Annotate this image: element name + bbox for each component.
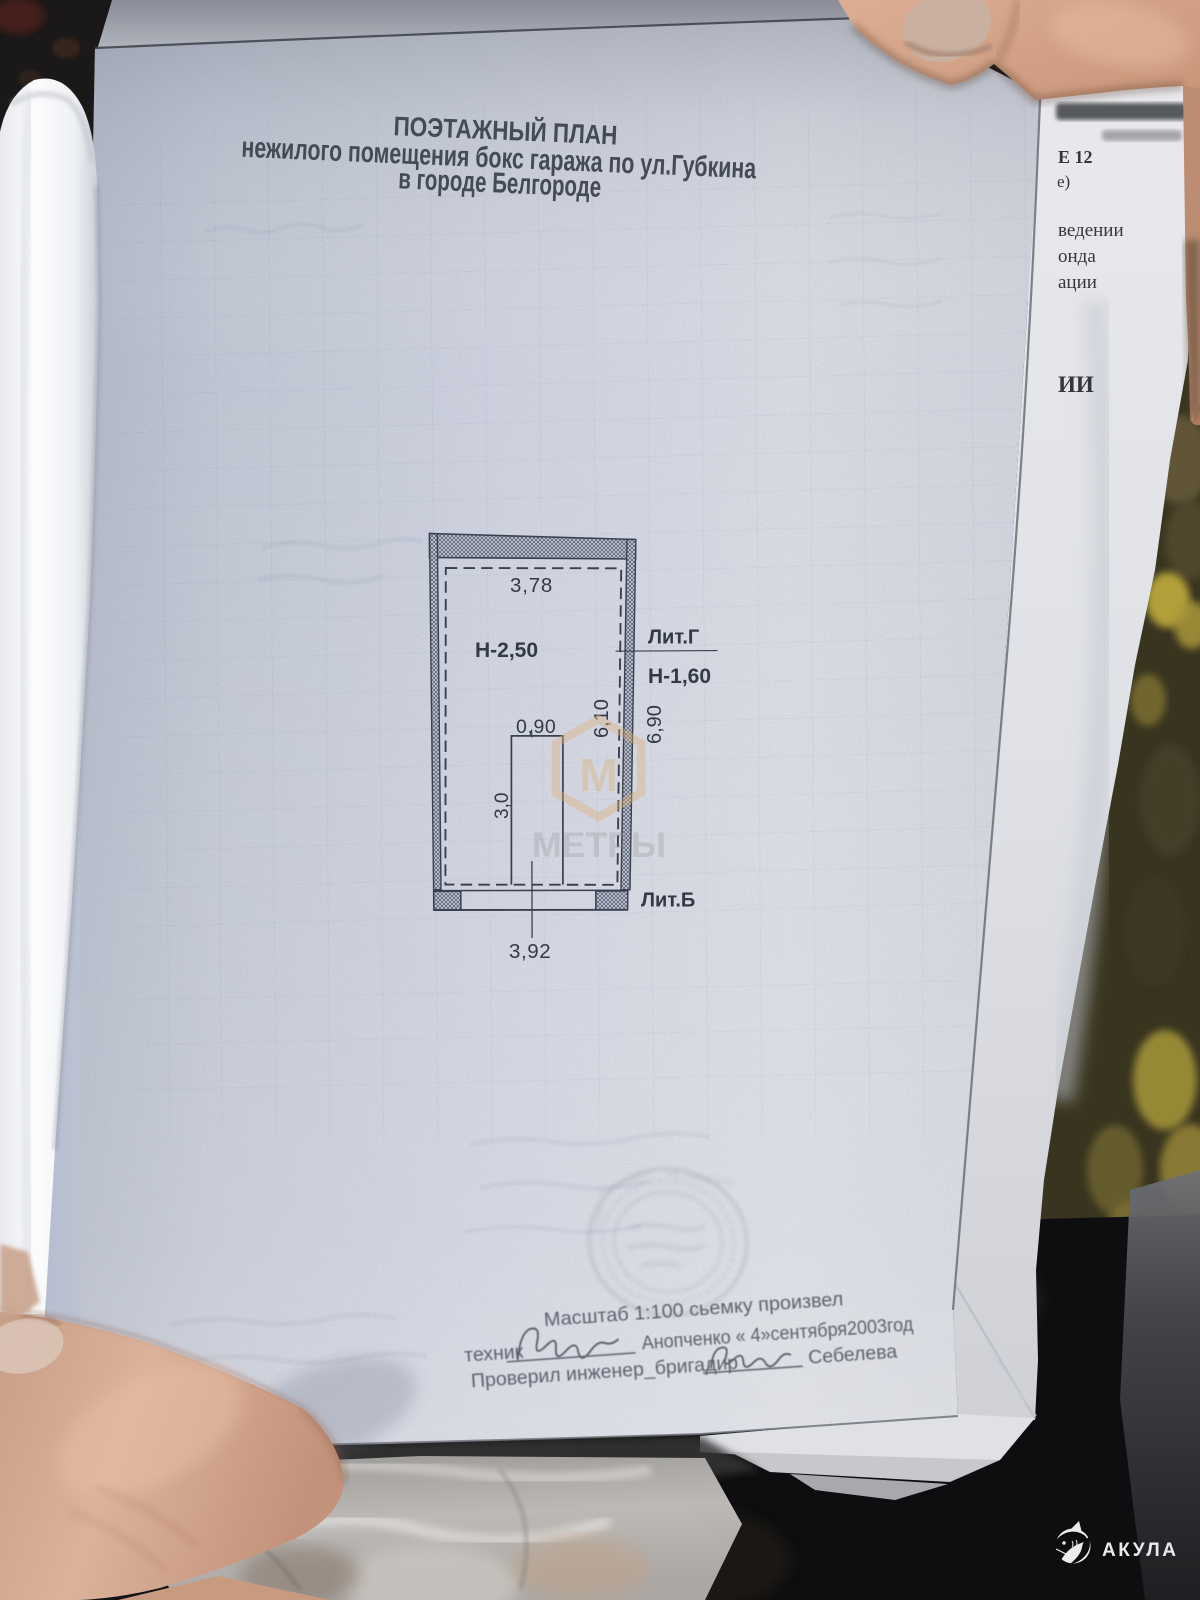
- svg-text:ации: ации: [1058, 272, 1097, 293]
- svg-text:е): е): [1057, 172, 1070, 191]
- svg-text:Лит.Б: Лит.Б: [641, 890, 695, 912]
- svg-text:3,92: 3,92: [509, 940, 551, 963]
- svg-text:АКУЛА: АКУЛА: [1102, 1540, 1178, 1561]
- svg-text:Лит.Г: Лит.Г: [648, 627, 699, 649]
- svg-text:0,90: 0,90: [516, 716, 556, 738]
- svg-text:техник: техник: [463, 1341, 524, 1367]
- svg-text:онда: онда: [1058, 246, 1096, 267]
- svg-text:Е 12: Е 12: [1058, 147, 1093, 167]
- svg-text:М: М: [579, 749, 617, 801]
- svg-text:ИИ: ИИ: [1058, 372, 1094, 397]
- svg-text:3,0: 3,0: [492, 793, 513, 819]
- svg-text:3,78: 3,78: [510, 574, 553, 597]
- svg-text:Н-1,60: Н-1,60: [648, 665, 711, 688]
- svg-text:6,90: 6,90: [644, 705, 666, 744]
- svg-text:ведении: ведении: [1058, 220, 1124, 241]
- svg-text:МЕТРЫ: МЕТРЫ: [532, 826, 666, 865]
- svg-text:Н-2,50: Н-2,50: [475, 639, 538, 662]
